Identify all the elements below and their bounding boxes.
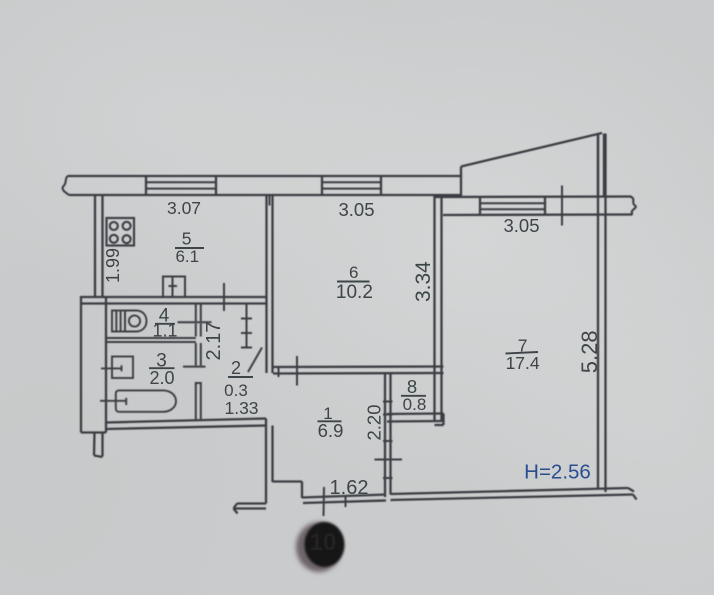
- svg-text:5: 5: [182, 229, 192, 249]
- svg-text:H=2.56: H=2.56: [524, 461, 591, 484]
- svg-text:3.34: 3.34: [412, 261, 435, 302]
- svg-text:2: 2: [231, 358, 241, 378]
- svg-text:1.1: 1.1: [152, 321, 177, 341]
- svg-text:10.2: 10.2: [336, 282, 373, 303]
- svg-text:3.05: 3.05: [338, 199, 374, 220]
- svg-text:5.28: 5.28: [577, 330, 602, 373]
- svg-text:6: 6: [349, 263, 358, 282]
- svg-text:1.99: 1.99: [103, 248, 123, 283]
- svg-text:2.17: 2.17: [203, 322, 225, 361]
- svg-text:2.0: 2.0: [149, 368, 174, 388]
- svg-text:17.4: 17.4: [506, 353, 540, 373]
- svg-text:3.05: 3.05: [503, 215, 539, 236]
- svg-text:6.1: 6.1: [175, 247, 199, 266]
- svg-text:10: 10: [310, 529, 337, 556]
- svg-text:1.33: 1.33: [224, 398, 258, 418]
- svg-text:0.8: 0.8: [403, 395, 427, 414]
- svg-text:2.20: 2.20: [364, 404, 385, 440]
- svg-text:3.07: 3.07: [167, 198, 201, 218]
- svg-text:6.9: 6.9: [318, 420, 344, 441]
- svg-text:8: 8: [407, 376, 417, 397]
- svg-text:1.62: 1.62: [330, 477, 369, 499]
